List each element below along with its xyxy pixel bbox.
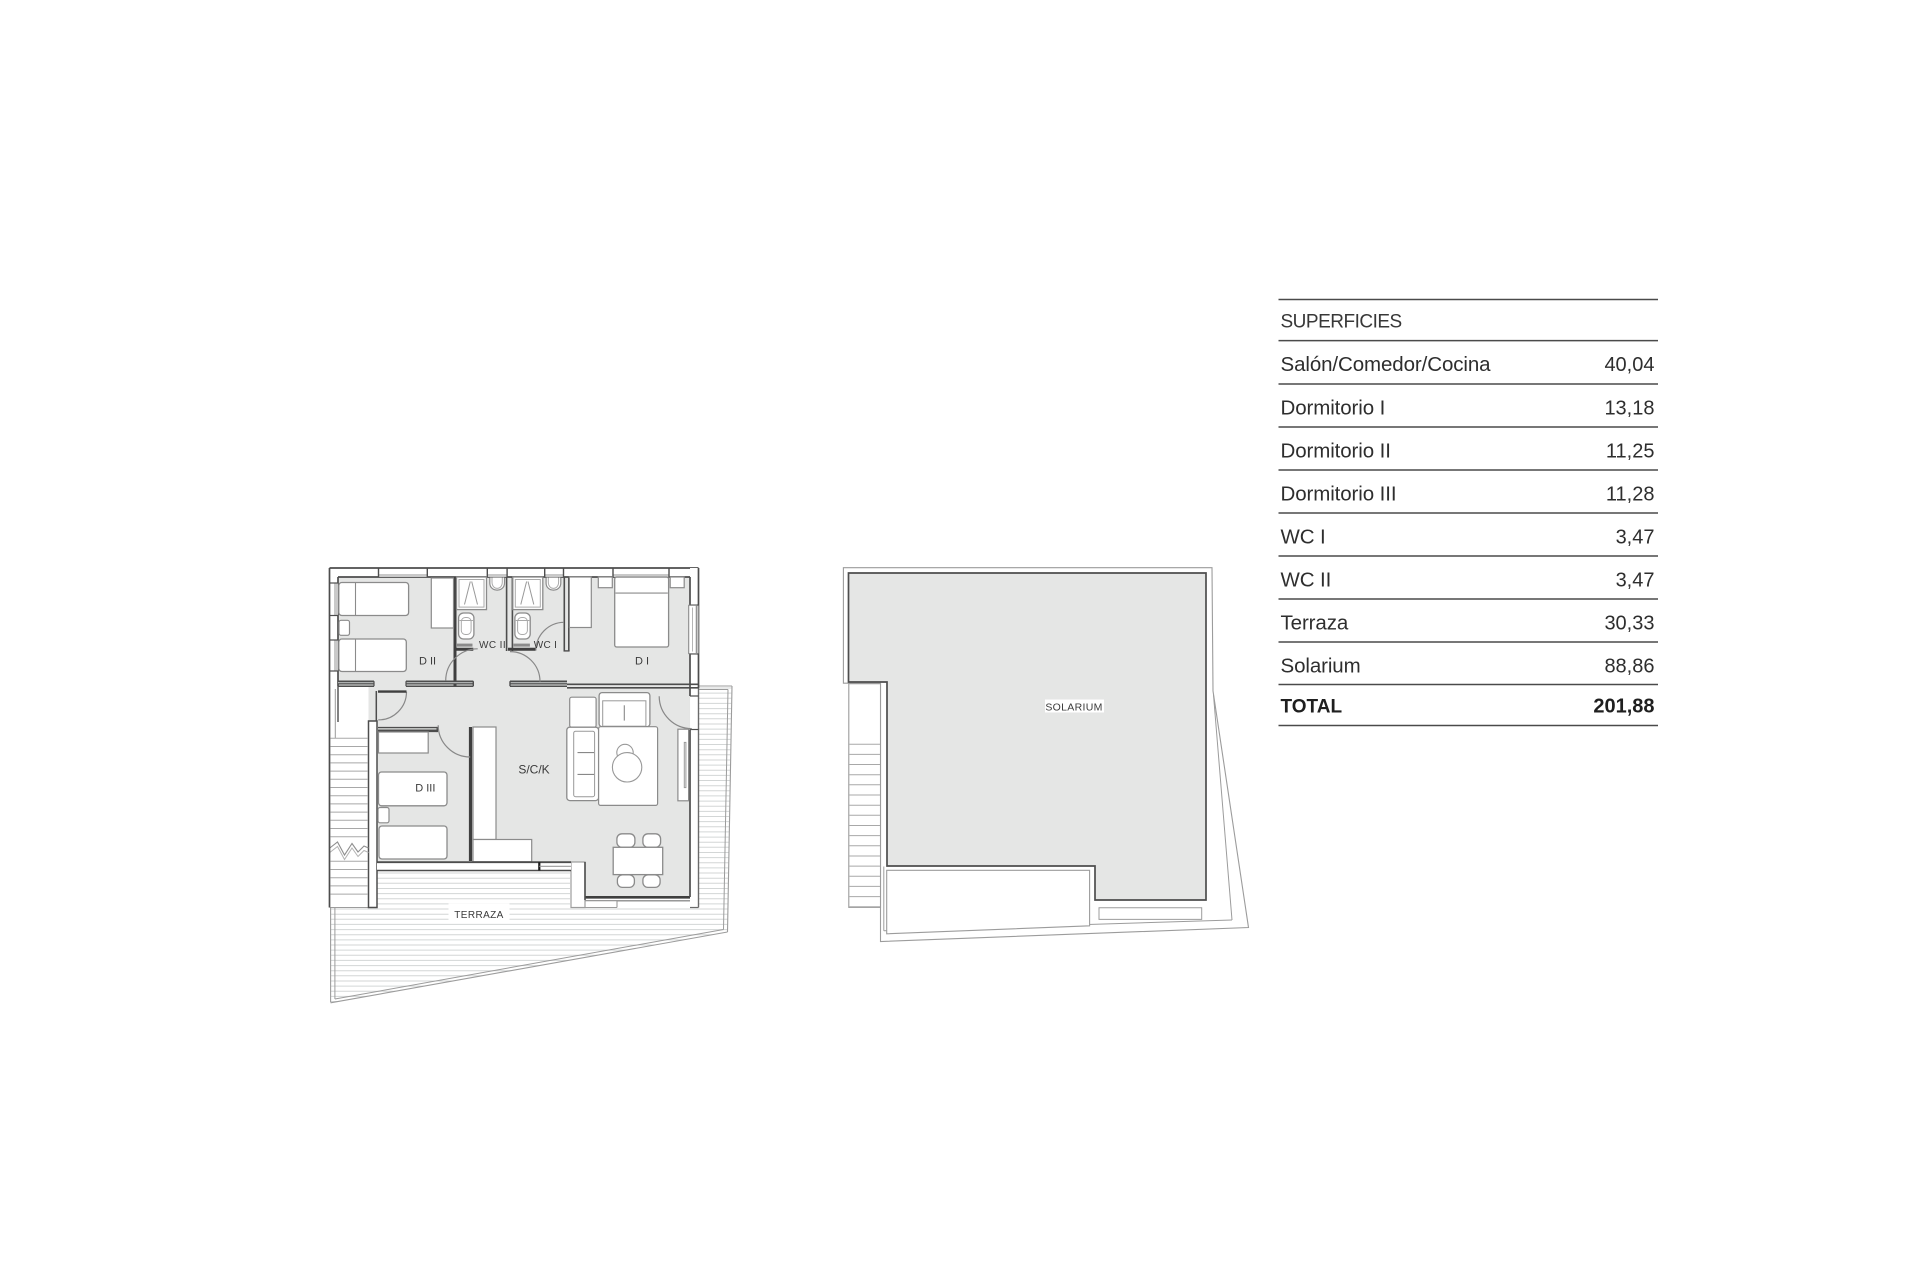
svg-text:D I: D I (635, 656, 649, 668)
svg-text:TERRAZA: TERRAZA (454, 910, 503, 921)
svg-text:Solarium: Solarium (1281, 655, 1361, 678)
svg-text:11,28: 11,28 (1606, 484, 1655, 506)
svg-text:D II: D II (419, 656, 436, 668)
svg-text:WC I: WC I (534, 640, 557, 651)
svg-text:Dormitorio III: Dormitorio III (1281, 483, 1397, 506)
svg-text:TOTAL: TOTAL (1281, 697, 1343, 718)
svg-text:Terraza: Terraza (1281, 612, 1349, 635)
svg-text:30,33: 30,33 (1604, 613, 1654, 635)
svg-text:Salón/Comedor/Cocina: Salón/Comedor/Cocina (1281, 353, 1492, 376)
svg-text:11,25: 11,25 (1606, 441, 1655, 463)
svg-text:201,88: 201,88 (1593, 696, 1654, 718)
svg-text:13,18: 13,18 (1604, 398, 1654, 420)
svg-text:Dormitorio I: Dormitorio I (1281, 397, 1386, 420)
svg-text:40,04: 40,04 (1604, 354, 1654, 376)
svg-text:WC I: WC I (1281, 526, 1326, 549)
svg-text:3,47: 3,47 (1616, 527, 1655, 549)
svg-text:WC II: WC II (1281, 569, 1332, 592)
svg-text:D III: D III (415, 783, 435, 795)
svg-text:S/C/K: S/C/K (518, 763, 549, 777)
svg-text:Dormitorio II: Dormitorio II (1281, 440, 1391, 463)
svg-text:SUPERFICIES: SUPERFICIES (1281, 312, 1402, 333)
svg-text:SOLARIUM: SOLARIUM (1045, 702, 1102, 714)
svg-text:88,86: 88,86 (1604, 656, 1654, 678)
svg-text:WC II: WC II (479, 640, 506, 651)
svg-text:3,47: 3,47 (1616, 570, 1655, 592)
